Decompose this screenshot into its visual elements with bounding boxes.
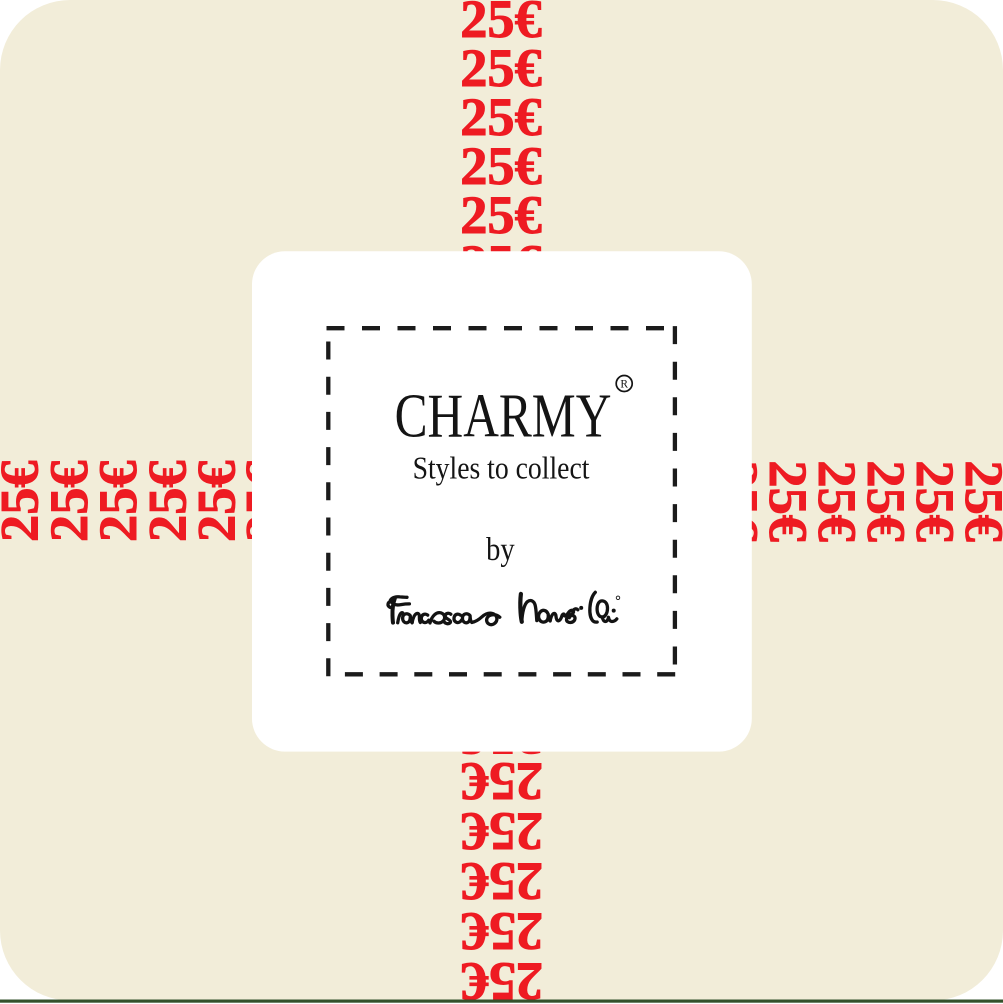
svg-text:25€: 25€ <box>462 952 544 1004</box>
svg-text:CHARMY: CHARMY <box>395 382 612 451</box>
svg-text:R: R <box>620 379 628 391</box>
svg-text:by: by <box>486 531 515 567</box>
svg-text:Styles to collect: Styles to collect <box>413 451 591 486</box>
svg-text:25€: 25€ <box>954 460 1003 542</box>
